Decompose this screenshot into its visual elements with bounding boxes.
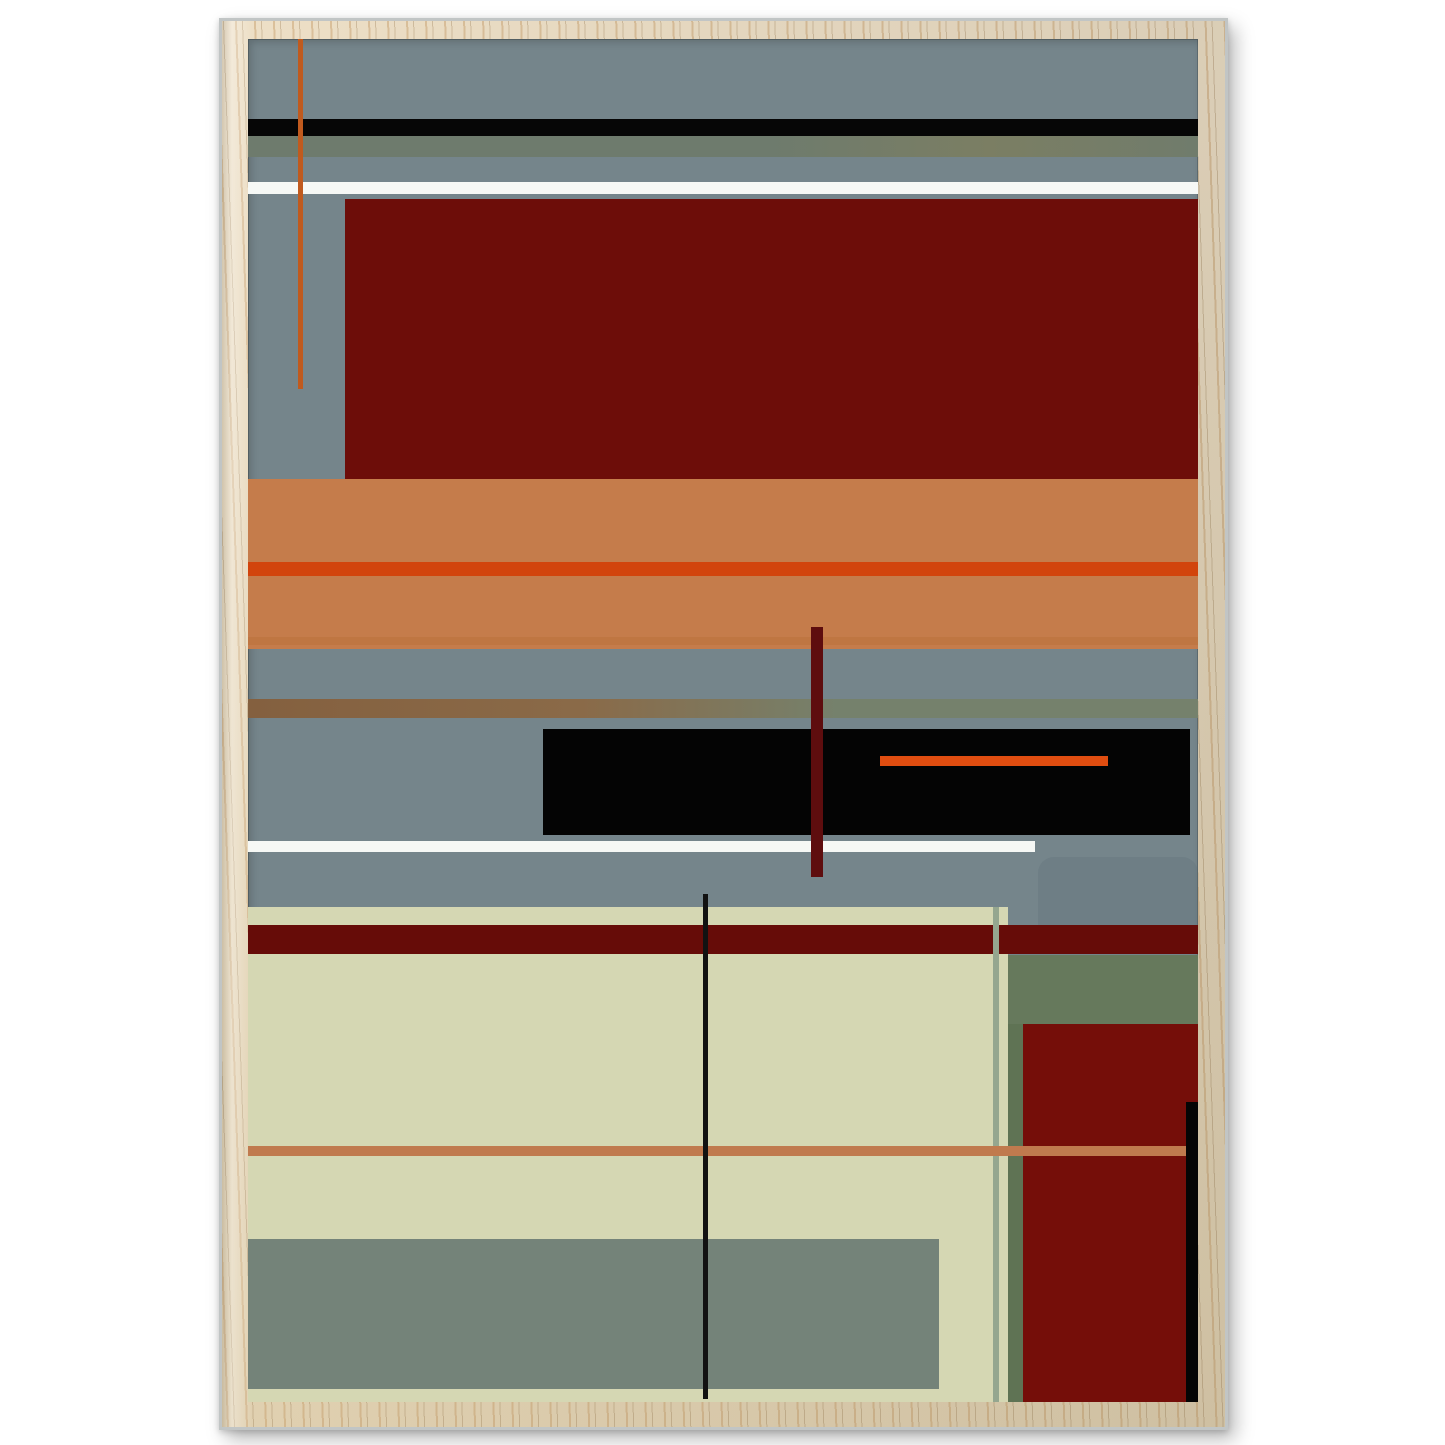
sage-right-region <box>1008 955 1198 1024</box>
top-black-band <box>248 119 1198 136</box>
black-thin-vline <box>703 894 708 1399</box>
mid-black-rect <box>543 729 1190 835</box>
bottom-gray-band <box>248 1239 939 1389</box>
bottom-black-bar <box>1186 1102 1198 1402</box>
top-white-band <box>248 182 1198 194</box>
orange-red-line <box>248 562 1198 576</box>
bottom-dark-red-rect <box>1023 1024 1198 1402</box>
rounded-gray-shape <box>1038 857 1198 925</box>
abstract-artwork <box>248 39 1198 1402</box>
brown-texture-stripe <box>248 699 1198 718</box>
top-olive-band <box>248 136 1198 157</box>
orange-vline <box>298 39 303 389</box>
bottom-tan-line <box>248 1146 1186 1156</box>
sage-column <box>1008 1024 1023 1402</box>
wood-poster-frame <box>219 18 1228 1430</box>
mid-white-line <box>248 841 1035 852</box>
product-backdrop <box>0 0 1445 1445</box>
tan-shadow-line <box>248 637 1198 645</box>
black-rect-orange-line <box>880 756 1108 766</box>
large-dark-red-rect <box>345 199 1198 479</box>
maroon-vbar <box>811 627 823 877</box>
dark-red-band <box>248 925 1198 954</box>
